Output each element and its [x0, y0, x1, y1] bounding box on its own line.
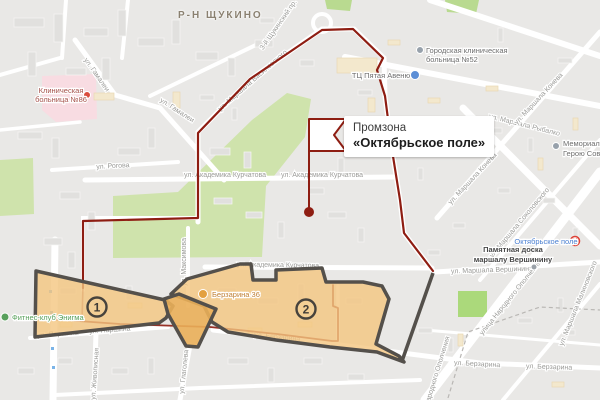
poi-dot-icon — [199, 290, 208, 299]
poi-label-line: ТЦ Пятая Авеню — [352, 71, 411, 80]
poi-label-line: Герою Советского... — [563, 149, 600, 158]
poi-hospital-86[interactable]: Клиническаябольница №86 — [35, 86, 90, 104]
poi-memorial-hero[interactable]: Мемориальная доскаГерою Советского... — [553, 139, 600, 158]
poi-label-line: Клиническая — [39, 86, 84, 95]
poi-metro-oktyabrskoye-pole[interactable]: МОктябрьское поле — [514, 237, 579, 247]
map-canvas[interactable]: ул. Гамалеиул. Гамалеиул. Роговаул. Акад… — [0, 0, 600, 400]
callout-line-2: «Октябрьское поле» — [353, 135, 485, 151]
promzone-callout: Промзона «Октябрьское поле» — [344, 116, 494, 157]
poi-fitness-enigma[interactable]: Фитнес-клуб Энигма — [1, 313, 84, 322]
poi-label-line: больница №86 — [35, 95, 87, 104]
street-label: ул. Академика Курчатова — [184, 172, 266, 179]
zone-2-number: 2 — [303, 303, 310, 317]
park-top-center — [325, 0, 352, 11]
poi-mall-pyataya-avenue[interactable]: ТЦ Пятая Авеню — [352, 71, 420, 81]
park-square — [458, 291, 487, 317]
poi-label-line: Октябрьское поле — [514, 237, 577, 246]
poi-label-line: маршалу Вершинину — [474, 255, 553, 264]
street-label: ул. Рогова — [96, 162, 130, 171]
street-label: ул. Маршала Малиновского — [558, 260, 598, 347]
street-label: ул. Академика Курчатова — [281, 172, 363, 179]
zone-2-tail-border — [402, 273, 433, 361]
street-label: ул. Маршала Конева — [447, 152, 498, 206]
poi-dot-icon — [531, 264, 537, 270]
poi-dot-icon — [1, 313, 9, 321]
district-label: Р-Н ЩУКИНО — [178, 10, 263, 21]
flag-anchor-dot — [304, 207, 314, 217]
map-layers: ул. Гамалеиул. Гамалеиул. Роговаул. Акад… — [0, 0, 600, 400]
poi-label-line: Берзарина 36 — [212, 290, 260, 299]
street-label: 3-й Щукинский пр. — [258, 0, 298, 51]
poi-label-line: Городская клиническая — [426, 46, 508, 55]
poi-dot-icon — [553, 143, 560, 150]
poi-label-line: больница №52 — [426, 55, 478, 64]
flag-icon — [309, 119, 346, 151]
poi-label-line: Фитнес-клуб Энигма — [12, 313, 84, 322]
zone-1-number: 1 — [94, 301, 101, 315]
poi-label-line: Мемориальная доска — [563, 139, 600, 148]
park-topleft — [0, 158, 34, 216]
street-label: ул. Берзарина — [454, 360, 501, 369]
poi-dot-icon — [417, 47, 424, 54]
poi-dot-icon — [411, 71, 420, 80]
poi-hospital-52[interactable]: Городская клиническаябольница №52 — [417, 46, 508, 64]
poi-label-line: Памятная доска — [483, 245, 543, 254]
callout-line-1: Промзона — [353, 121, 485, 135]
street-label: ул. Берзарина — [526, 363, 573, 372]
